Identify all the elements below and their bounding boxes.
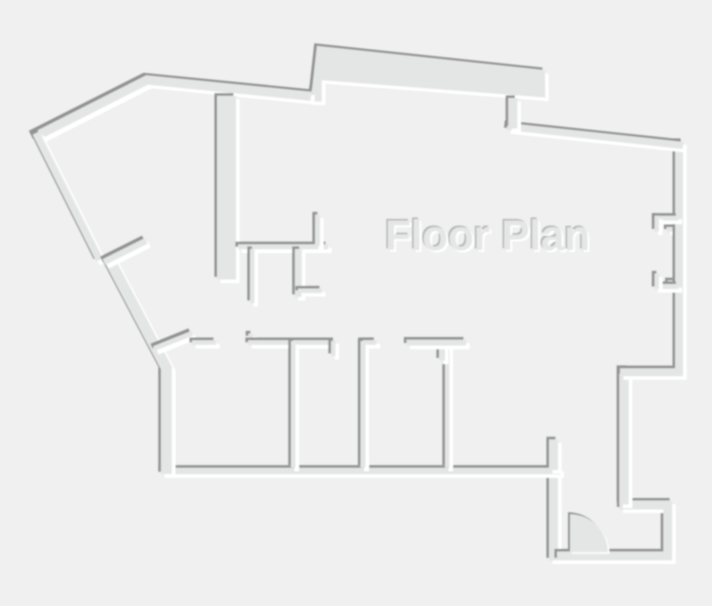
svg-text:Floor Plan: Floor Plan	[385, 213, 590, 260]
